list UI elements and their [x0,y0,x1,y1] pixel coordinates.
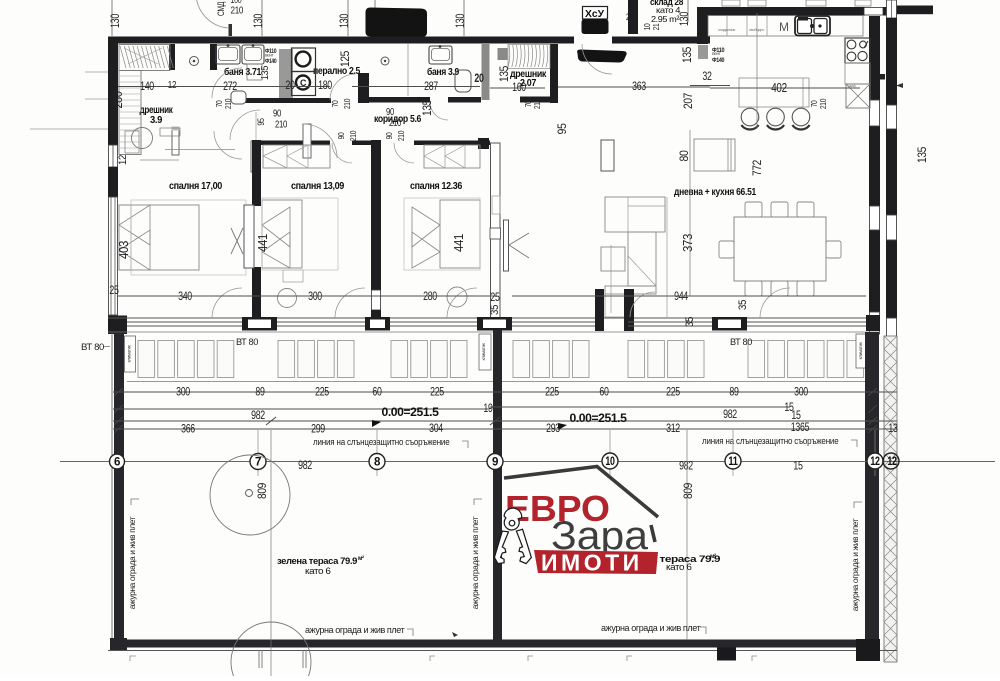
svg-text:207: 207 [681,92,695,109]
svg-text:90: 90 [336,132,346,139]
svg-text:ХсУ: ХсУ [585,8,604,20]
svg-text:287: 287 [424,81,438,93]
svg-text:спалня 13,09: спалня 13,09 [291,181,345,192]
svg-text:35: 35 [684,317,696,327]
svg-text:60: 60 [372,387,381,399]
svg-text:12: 12 [870,456,879,468]
svg-text:363: 363 [632,81,646,93]
svg-text:6: 6 [114,457,120,469]
svg-text:210: 210 [348,130,358,141]
svg-text:11: 11 [728,456,738,468]
svg-text:70: 70 [330,100,340,107]
svg-text:280: 280 [111,91,125,108]
svg-text:шкаф: шкаф [848,83,856,88]
svg-text:403: 403 [116,241,131,259]
svg-text:ажурна ограда и жив плет: ажурна ограда и жив плет [851,518,860,611]
svg-text:809: 809 [255,482,269,499]
svg-text:89: 89 [255,387,264,399]
svg-text:210: 210 [532,98,542,109]
svg-text:баня 3.71: баня 3.71 [224,66,262,78]
svg-text:210: 210 [818,98,828,109]
svg-text:135: 135 [420,99,434,116]
svg-text:климатик: климатик [858,342,863,359]
svg-text:перално 2.5: перално 2.5 [313,66,361,77]
svg-text:225: 225 [545,387,559,399]
svg-text:130: 130 [253,14,265,28]
svg-text:982: 982 [679,461,693,473]
svg-text:982: 982 [298,460,312,472]
svg-text:32: 32 [702,71,711,83]
svg-text:спалня 17,00: спалня 17,00 [169,181,223,192]
svg-text:180: 180 [318,80,332,92]
svg-text:35: 35 [489,305,501,315]
svg-text:90: 90 [384,132,394,139]
svg-text:130: 130 [339,14,351,28]
svg-text:293: 293 [546,423,560,435]
svg-text:373: 373 [680,234,695,252]
svg-text:13: 13 [888,423,897,435]
svg-text:12: 12 [168,79,177,91]
svg-text:225: 225 [666,387,680,399]
svg-text:линия на слънцезащитно съоръже: линия на слънцезащитно съоръжение [702,436,839,446]
svg-text:80: 80 [677,150,691,162]
svg-text:35: 35 [737,300,749,310]
svg-text:304: 304 [429,423,444,435]
svg-text:20: 20 [474,73,483,85]
svg-text:ВТ 80: ВТ 80 [730,337,752,348]
svg-text:140: 140 [140,81,154,93]
svg-text:м²: м² [358,555,364,562]
svg-text:135: 135 [680,46,694,63]
svg-text:ажурна ограда и жив плет: ажурна ограда и жив плет [128,516,137,609]
svg-text:ажурна ограда и жив плет: ажурна ограда и жив плет [601,623,701,633]
svg-text:300: 300 [794,387,808,399]
svg-text:25: 25 [490,292,499,304]
svg-text:300: 300 [176,387,190,399]
svg-text:982: 982 [723,409,737,421]
svg-text:като 6: като 6 [666,562,692,572]
svg-text:вент: вент [712,51,721,56]
svg-text:210: 210 [231,5,244,17]
svg-text:210: 210 [342,98,352,109]
svg-text:м²: м² [710,553,716,560]
svg-text:0.00=251.5: 0.00=251.5 [570,413,628,425]
svg-text:366: 366 [181,424,195,436]
svg-text:95: 95 [555,123,569,135]
svg-text:25: 25 [109,285,118,297]
svg-text:СМД: СМД [216,2,226,16]
svg-text:10: 10 [605,456,614,468]
svg-text:402: 402 [771,80,787,95]
svg-text:340: 340 [178,291,192,303]
svg-text:спалня 12.36: спалня 12.36 [410,181,463,192]
svg-text:хладилник: хладилник [718,27,736,32]
svg-text:210: 210 [275,120,288,131]
svg-text:ВТ 80: ВТ 80 [81,342,104,353]
svg-text:2.95 m²: 2.95 m² [651,14,680,24]
svg-text:130: 130 [455,14,467,28]
svg-text:60: 60 [599,387,608,399]
svg-text:20: 20 [285,80,294,92]
svg-text:982: 982 [251,410,265,422]
svg-text:225: 225 [430,387,444,399]
svg-text:135: 135 [915,146,929,163]
svg-text:като 6: като 6 [305,566,331,576]
svg-text:линия на слънцезащитно съоръже: линия на слънцезащитно съоръжение [313,437,450,447]
svg-text:15: 15 [793,461,802,473]
svg-text:944: 944 [674,291,689,303]
svg-text:90: 90 [273,109,282,120]
svg-text:ажурна ограда и жив плет: ажурна ограда и жив плет [305,625,405,635]
svg-text:М: М [779,20,789,34]
svg-text:441: 441 [451,234,466,252]
svg-text:272: 272 [223,81,237,93]
svg-text:климатик: климатик [127,345,132,362]
svg-text:210: 210 [223,98,233,109]
svg-text:Ф140: Ф140 [712,57,725,64]
svg-text:15: 15 [791,410,800,422]
svg-text:130: 130 [679,12,691,26]
svg-text:1365: 1365 [791,422,809,434]
svg-text:8: 8 [374,457,381,469]
svg-text:дневна + кухня 66.51: дневна + кухня 66.51 [674,187,757,198]
svg-text:12: 12 [887,456,896,468]
svg-text:210: 210 [389,118,402,129]
svg-text:95: 95 [256,118,266,126]
svg-text:225: 225 [315,387,329,399]
svg-text:климатик: климатик [481,343,486,360]
svg-text:вент: вент [265,53,274,58]
svg-text:19: 19 [483,403,492,415]
svg-text:21: 21 [651,23,661,30]
svg-text:312: 312 [666,423,680,435]
svg-text:125: 125 [338,50,352,67]
svg-text:ИМОТИ: ИМОТИ [541,550,643,576]
svg-text:772: 772 [750,159,764,176]
svg-text:441: 441 [255,234,270,252]
svg-text:7: 7 [255,457,261,469]
svg-text:280: 280 [423,291,437,303]
svg-text:12: 12 [117,155,129,165]
svg-text:90: 90 [386,107,395,118]
svg-text:210: 210 [396,130,406,141]
svg-text:299: 299 [311,424,325,436]
svg-text:ажурна ограда и жив плет: ажурна ограда и жив плет [471,516,480,609]
svg-text:ВТ 80: ВТ 80 [236,337,258,348]
svg-text:809: 809 [681,482,695,499]
svg-text:89: 89 [729,387,738,399]
svg-text:9: 9 [492,457,498,469]
svg-text:0.00=251.5: 0.00=251.5 [382,407,440,419]
svg-text:300: 300 [308,291,322,303]
svg-text:3.9: 3.9 [150,115,163,126]
svg-text:Ф140: Ф140 [265,59,277,65]
svg-text:135: 135 [497,65,511,82]
